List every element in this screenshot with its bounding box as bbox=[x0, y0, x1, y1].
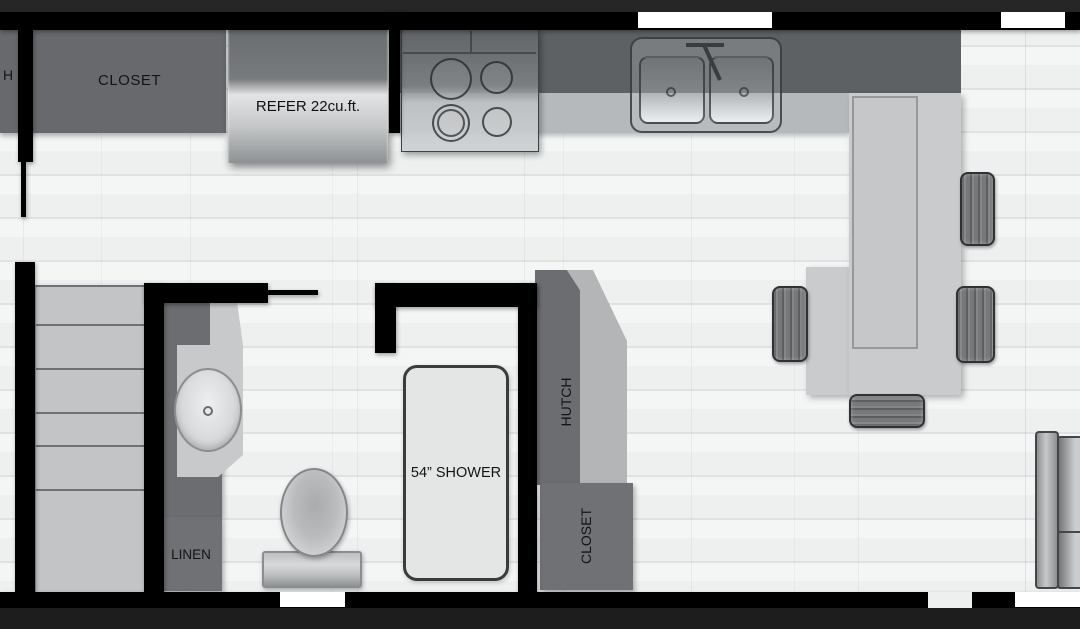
bar-stool bbox=[772, 286, 808, 362]
side-closet-label: CLOSET bbox=[576, 471, 596, 601]
refrigerator bbox=[228, 18, 388, 163]
vanity-drain-icon bbox=[203, 406, 213, 416]
window-bottom-left bbox=[280, 592, 345, 607]
burner-icon bbox=[480, 61, 513, 94]
window-top-center bbox=[638, 12, 772, 28]
sink-drain-icon bbox=[739, 87, 749, 97]
shower-label: 54” SHOWER bbox=[411, 465, 501, 481]
top-closet-label: CLOSET bbox=[33, 28, 226, 133]
stair-step-line bbox=[36, 368, 145, 370]
cooktop-panel-line bbox=[403, 52, 536, 54]
outer-trim-bottom bbox=[0, 608, 1080, 629]
bar-island-countertop bbox=[852, 96, 918, 349]
shower-top-wall bbox=[375, 283, 537, 307]
bathroom-left-wall bbox=[144, 283, 164, 592]
stair-step-line bbox=[36, 324, 145, 326]
burner-icon bbox=[430, 58, 472, 100]
burner-ring-icon bbox=[437, 109, 465, 137]
stair-step-line bbox=[36, 412, 145, 414]
window-top-right bbox=[1001, 12, 1065, 28]
floor-plan: 54” SHOWER LINEN HUTCH CLOSET REFER 22cu… bbox=[0, 0, 1080, 629]
bathroom-right-wall bbox=[518, 283, 537, 592]
stair-step-line bbox=[36, 489, 145, 491]
sofa-armrest bbox=[1035, 431, 1059, 589]
bar-island-base bbox=[806, 267, 850, 395]
hutch-label: HUTCH bbox=[556, 337, 576, 467]
bathroom-door-line bbox=[268, 290, 318, 295]
burner-icon bbox=[482, 107, 512, 137]
bar-stool bbox=[956, 286, 995, 363]
refrigerator-label: REFER 22cu.ft. bbox=[228, 95, 388, 117]
left-room-partial-label: H bbox=[0, 63, 16, 87]
cabinet-divider-wall bbox=[389, 12, 400, 133]
cooktop-panel-divider bbox=[470, 31, 472, 52]
bar-stool bbox=[960, 172, 995, 246]
entry-opening bbox=[928, 592, 972, 608]
sink-drain-icon bbox=[666, 87, 676, 97]
sofa-cushion bbox=[1057, 531, 1080, 589]
cooktop bbox=[401, 29, 539, 152]
stairs bbox=[35, 285, 146, 595]
bar-stool bbox=[849, 394, 925, 428]
stair-step-line bbox=[36, 445, 145, 447]
left-wall-upper bbox=[18, 28, 33, 162]
left-door-line bbox=[21, 162, 26, 217]
window-bottom-right bbox=[1015, 592, 1080, 607]
left-wall-lower bbox=[15, 262, 35, 594]
toilet-bowl bbox=[280, 468, 348, 557]
outer-trim-top bbox=[0, 0, 1080, 12]
bottom-wall bbox=[0, 592, 1080, 608]
sofa-cushion bbox=[1057, 436, 1080, 533]
bathroom-top-wall bbox=[144, 283, 268, 303]
faucet-icon bbox=[678, 38, 730, 84]
burner-icon bbox=[432, 104, 470, 142]
shower-stall: 54” SHOWER bbox=[403, 365, 509, 581]
linen-label: LINEN bbox=[160, 517, 222, 591]
